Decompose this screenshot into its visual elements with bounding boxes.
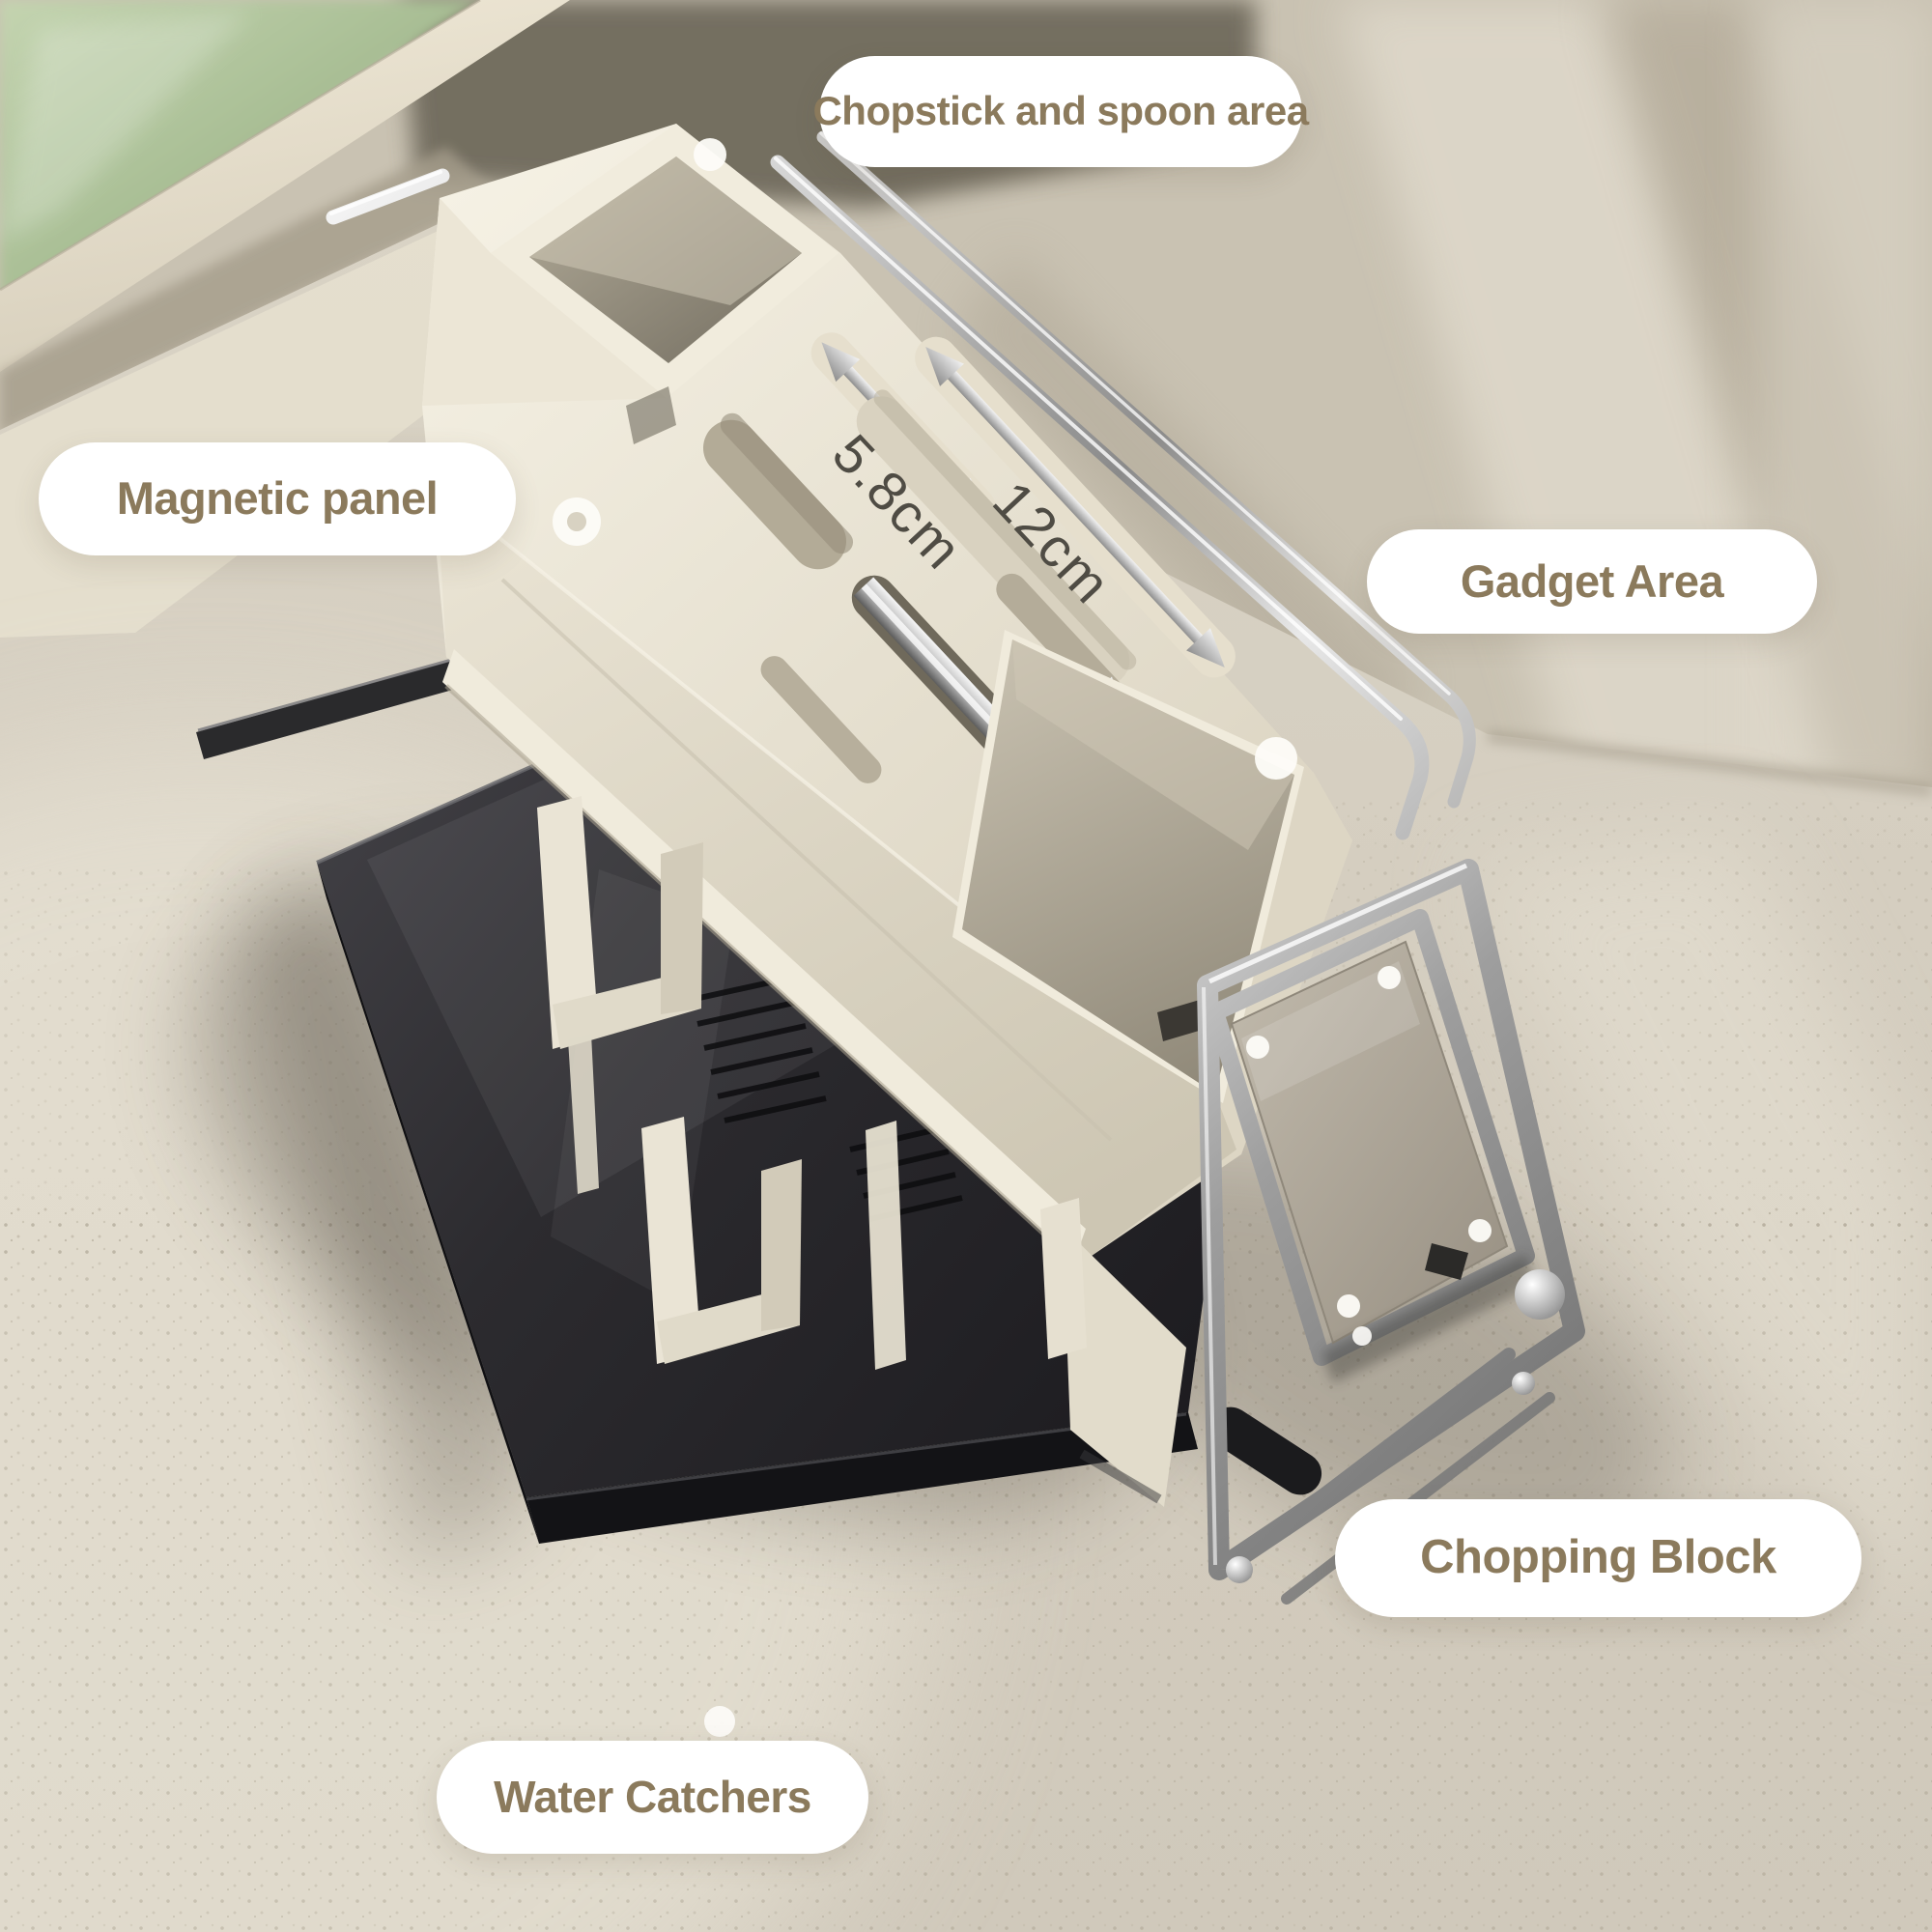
- magnet-dot: [1352, 1326, 1372, 1346]
- magnet-dot: [1337, 1294, 1360, 1318]
- callout-label: Chopstick and spoon area: [812, 88, 1308, 134]
- callout-label: Water Catchers: [494, 1771, 811, 1823]
- callout-label: Chopping Block: [1420, 1530, 1776, 1584]
- magnet-ring-dot: [553, 497, 601, 546]
- magnet-dot: [694, 138, 726, 171]
- callout-water-catchers: Water Catchers: [437, 1741, 868, 1854]
- magnet-dot: [1468, 1219, 1492, 1242]
- callout-chopstick-and-spoon-area: Chopstick and spoon area: [819, 56, 1302, 167]
- magnet-dot: [1246, 1036, 1269, 1059]
- magnet-dot: [1255, 737, 1297, 780]
- callout-label: Gadget Area: [1461, 554, 1723, 608]
- magnet-dot: [704, 1706, 735, 1737]
- callout-chopping-block: Chopping Block: [1335, 1499, 1861, 1617]
- callout-gadget-area: Gadget Area: [1367, 529, 1817, 634]
- stand-foot: [1512, 1372, 1535, 1395]
- product-annotation-image: 5.8cm 12cm 0.5 0.8: [0, 0, 1932, 1932]
- stand-ball-joint: [1515, 1269, 1565, 1320]
- magnet-dot: [1378, 966, 1401, 989]
- stand-foot: [1226, 1556, 1253, 1583]
- kitchen-scene-illustration: 5.8cm 12cm 0.5 0.8: [0, 0, 1932, 1932]
- callout-magnetic-panel: Magnetic panel: [39, 442, 516, 555]
- callout-label: Magnetic panel: [117, 471, 439, 525]
- small-hang-tab: [1040, 1198, 1087, 1359]
